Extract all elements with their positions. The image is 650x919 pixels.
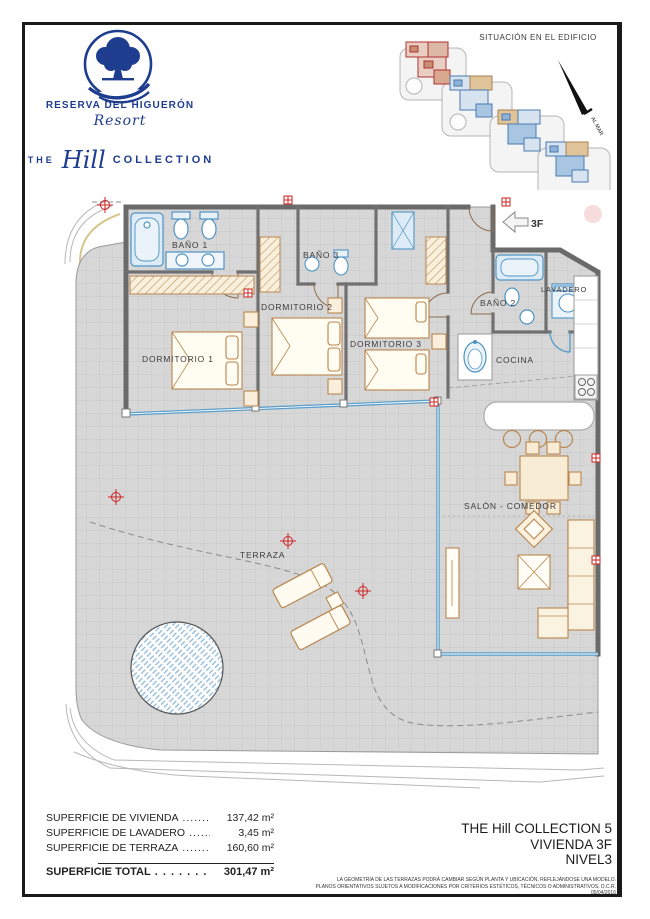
- room-label-lavadero: LAVADERO: [541, 285, 587, 294]
- plan-sheet: RESERVA DEL HIGUERÓN Resort THE Hill COL…: [0, 0, 650, 919]
- brand-name: RESERVA DEL HIGUERÓN: [28, 100, 212, 111]
- brand-logo-icon: [55, 26, 181, 110]
- area-row-vivienda: SUPERFICIE DE VIVIENDA .............. 13…: [46, 811, 274, 826]
- area-value: 137,42 m²: [214, 811, 274, 826]
- disclaimer-line1: LA GEOMETRÍA DE LAS TERRAZAS PODRÁ CAMBI…: [306, 877, 616, 884]
- brand-resort-script: Resort: [28, 113, 212, 129]
- area-row-total: SUPERFICIE TOTAL . . . . . . . . . . 301…: [46, 866, 274, 878]
- room-label-salon: SALÓN - COMEDOR: [464, 501, 557, 511]
- situation-title: SITUACIÓN EN EL EDIFICIO: [479, 33, 597, 42]
- total-label: SUPERFICIE TOTAL: [46, 866, 151, 878]
- collection-hill-script: Hill: [62, 148, 106, 172]
- collection-title: THE Hill COLLECTION: [25, 148, 217, 172]
- unit-vivienda: VIVIENDA 3F: [461, 837, 612, 853]
- room-label-dorm3: DORMITORIO 3: [350, 339, 422, 349]
- room-label-dorm2: DORMITORIO 2: [261, 302, 333, 312]
- area-value: 3,45 m²: [214, 826, 274, 841]
- terrace-spa-circle: [131, 622, 223, 714]
- area-dots: .............: [189, 826, 210, 841]
- building-situation-map: SITUACIÓN EN EL EDIFICIO: [398, 26, 618, 190]
- area-label: SUPERFICIE DE LAVADERO: [46, 826, 185, 841]
- total-value: 301,47 m²: [214, 866, 274, 878]
- stamp-mark: [584, 205, 602, 223]
- unit-nivel: NIVEL3: [461, 852, 612, 868]
- area-row-terraza: SUPERFICIE DE TERRAZA ............... 16…: [46, 841, 274, 856]
- tree-icon: [96, 37, 140, 80]
- entry-label: 3F: [531, 218, 544, 230]
- tv-bench: [446, 548, 459, 618]
- room-label-terraza: TERRAZA: [240, 550, 285, 560]
- unit-collection: THE Hill COLLECTION 5: [461, 821, 612, 837]
- room-label-bano2: BAÑO 2: [480, 298, 516, 308]
- sea-arrow-label: AL MAR: [589, 116, 604, 137]
- area-label: SUPERFICIE DE TERRAZA: [46, 841, 178, 856]
- area-dots: ...............: [182, 841, 210, 856]
- area-dots: ..............: [182, 811, 210, 826]
- entry-arrow-icon: 3F: [503, 212, 544, 232]
- disclaimer-line2: PLANOS ORIENTATIVOS SUJETOS A MODIFICACI…: [306, 884, 616, 897]
- room-label-dorm1: DORMITORIO 1: [142, 354, 214, 364]
- collection-word: COLLECTION: [113, 154, 215, 166]
- floor-plan: 3F BAÑO 1 DORMITORIO 1 DORMITORIO 2 BAÑO…: [60, 192, 622, 794]
- collection-the: THE: [28, 155, 55, 165]
- room-label-bano3: BAÑO 3: [303, 250, 339, 260]
- sea-direction-arrow-icon: AL MAR: [558, 60, 604, 137]
- total-separator-line: [98, 863, 274, 864]
- room-label-bano1: BAÑO 1: [172, 240, 208, 250]
- total-dots: . . . . . . . . . .: [155, 866, 210, 878]
- area-row-lavadero: SUPERFICIE DE LAVADERO ............. 3,4…: [46, 826, 274, 841]
- area-value: 160,60 m²: [214, 841, 274, 856]
- unit-title-block: THE Hill COLLECTION 5 VIVIENDA 3F NIVEL3: [461, 821, 612, 868]
- area-label: SUPERFICIE DE VIVIENDA: [46, 811, 178, 826]
- surface-areas-table: SUPERFICIE DE VIVIENDA .............. 13…: [46, 811, 274, 878]
- disclaimer-text: LA GEOMETRÍA DE LAS TERRAZAS PODRÁ CAMBI…: [306, 877, 616, 897]
- room-label-cocina: COCINA: [496, 355, 534, 365]
